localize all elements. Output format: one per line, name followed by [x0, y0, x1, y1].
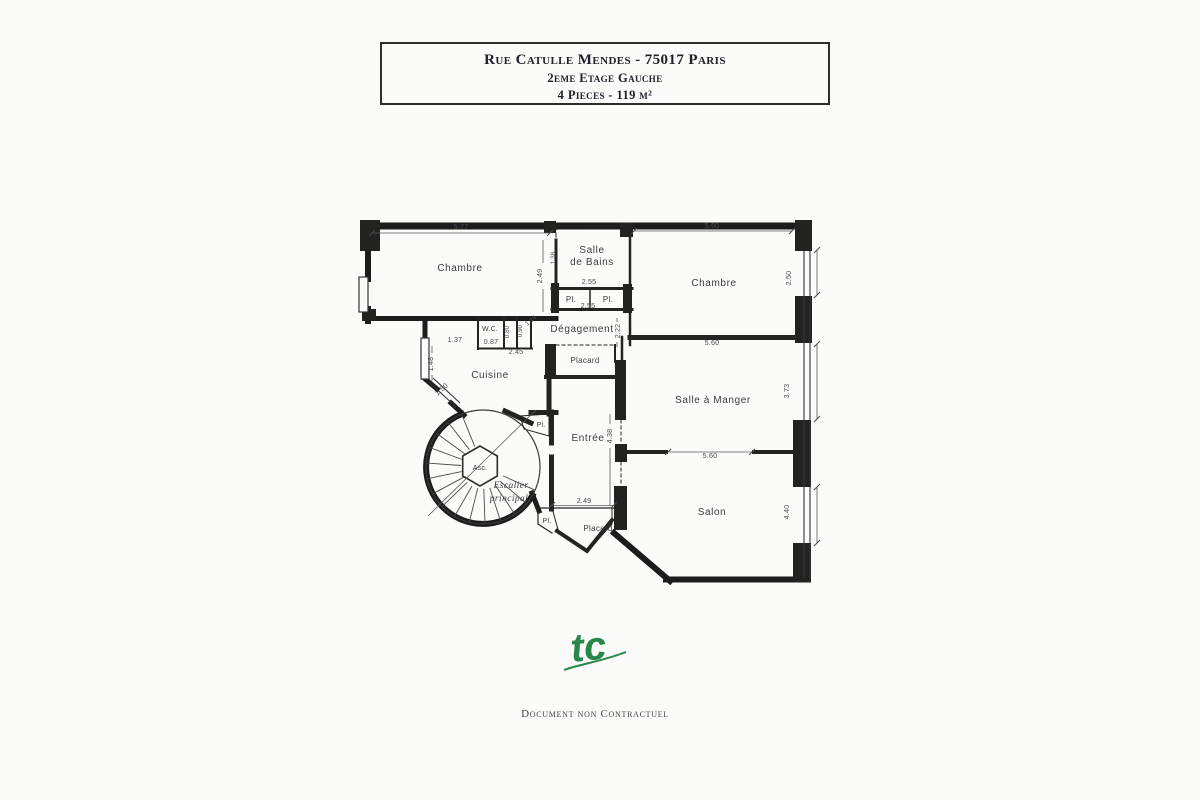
dim-cuisine-wall: 1.48: [426, 357, 435, 372]
room-label-pl-left: Pl.: [566, 295, 576, 304]
dim-entree-depth: 4.38: [605, 429, 614, 444]
dim-sam-depth: 3.73: [782, 384, 791, 399]
room-label-pl-landing: Pl.: [537, 422, 546, 429]
room-label-pl-bottom: Pl.: [543, 518, 552, 525]
dim-sdb-width: 2.55: [582, 277, 597, 286]
stair-tread-line: [443, 482, 468, 506]
dim-placard-bottom-width: 2.49: [577, 496, 592, 505]
room-label-degagement: Dégagement: [550, 324, 613, 335]
dim-sam-width: 5.60: [705, 338, 720, 347]
dim-pl-row-width: 2.55: [581, 301, 596, 310]
dim-cuisine-diag: 1.50: [433, 381, 450, 398]
room-label-placard-middle: Placard: [570, 356, 599, 365]
room-label-salon: Salon: [698, 507, 727, 518]
room-label-chambre-right: Chambre: [691, 278, 736, 289]
dim-sam-salon-opening: 5.60: [703, 451, 718, 460]
agency-logo: tc: [556, 618, 636, 682]
stair-tread-line: [455, 486, 472, 515]
dim-chambre-right-width: 5.60: [705, 221, 720, 230]
dim-chambre-right-depth: 2.50: [784, 271, 793, 286]
stair-tread-line: [484, 489, 485, 523]
room-label-escalier-1: Escalier: [493, 481, 529, 491]
room-label-cuisine: Cuisine: [471, 370, 509, 381]
stair-tread-line: [427, 463, 461, 465]
dim-cuisine-opening: 2.45: [509, 347, 524, 356]
stair-tread-line: [438, 434, 466, 454]
dim-salon-depth: 4.40: [782, 505, 791, 520]
scanned-floor-plan-page: Rue Catulle Mendes - 75017 Paris 2eme Et…: [0, 0, 1200, 800]
window-chambre-left: [359, 277, 368, 312]
stair-tread-line: [490, 488, 501, 520]
dim-closet-a: 0.80: [504, 325, 511, 338]
dim-degagement-depth: 2.22: [613, 324, 622, 339]
dim-chambre-left-depth: 2.49: [535, 269, 544, 284]
dim-chambre-left-width: 5.77: [454, 222, 469, 231]
room-label-pl-right: Pl.: [603, 295, 613, 304]
room-label-entree: Entrée: [571, 433, 604, 444]
stair-tread-line: [428, 472, 461, 479]
room-label-salle-de-bains-2: de Bains: [570, 257, 614, 268]
room-label-chambre-left: Chambre: [437, 263, 482, 274]
dim-closet-b: 0.90: [517, 324, 524, 337]
stair-tread-line: [430, 448, 462, 460]
disclaimer-text: Document non Contractuel: [450, 708, 740, 720]
room-label-ascenseur: Asc.: [473, 465, 487, 472]
stair-tread-line: [470, 488, 478, 521]
dim-wc-width: 0.87: [484, 337, 499, 346]
room-label-placard-bottom: Placard: [583, 524, 612, 533]
room-label-salle-a-manger: Salle à Manger: [675, 395, 751, 406]
room-label-escalier-2: principal: [489, 494, 528, 504]
room-label-salle-de-bains-1: Salle: [579, 245, 604, 256]
dim-sdb-wall: 1.38: [550, 251, 557, 264]
room-label-wc: W.C.: [482, 326, 498, 333]
dim-vestibule-width: 1.37: [448, 335, 463, 344]
